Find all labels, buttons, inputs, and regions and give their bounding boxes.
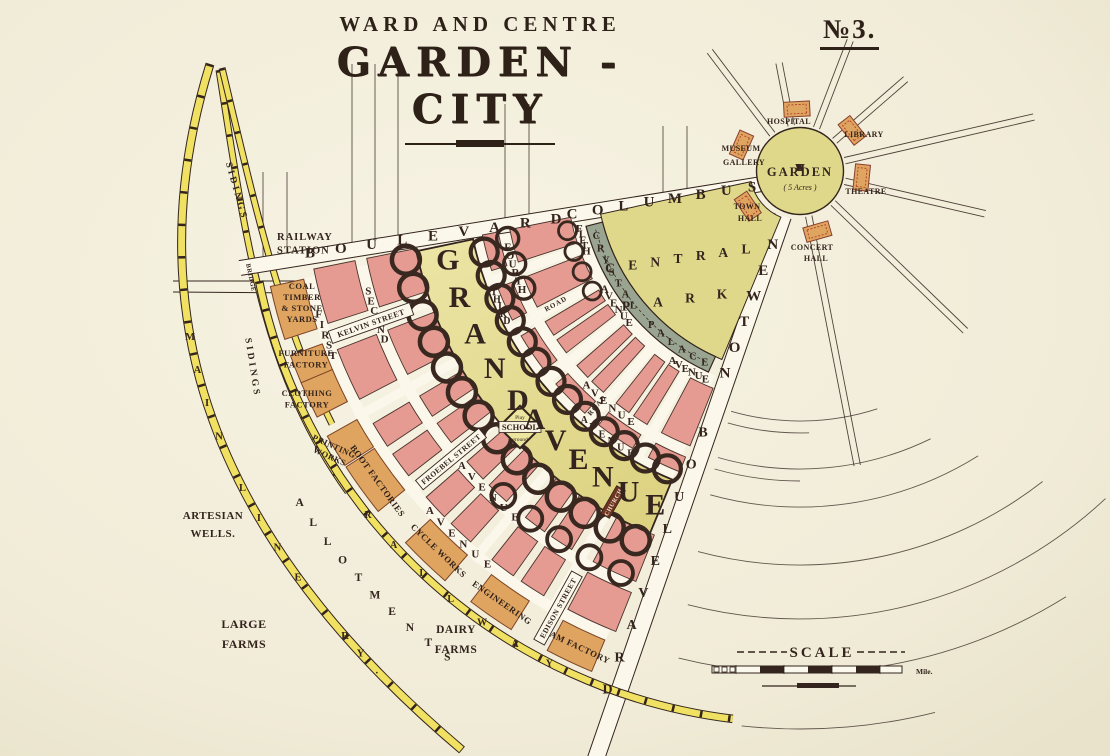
- label-clothing-factory-line: FACTORY: [285, 400, 329, 410]
- garden-city-map-plate: COALTIMBER& STONEYARDSFURNITUREFACTORYCL…: [0, 0, 1110, 756]
- label-allotments: M: [369, 590, 380, 602]
- label-boulevard-columbus: E: [428, 228, 438, 244]
- label-grand-avenue: N: [592, 460, 614, 493]
- label-boulevard-columbus: L: [397, 233, 407, 249]
- label-second-avenue: V: [468, 471, 476, 483]
- label-boulevard-newton: U: [674, 490, 684, 505]
- label-main-line-railway: N: [215, 431, 223, 442]
- label-third-avenue: A: [581, 415, 589, 426]
- label-central-park: K: [717, 287, 728, 302]
- label-crystal-palace: Y: [602, 256, 610, 267]
- label-boulevard-newton: R: [614, 650, 625, 665]
- label-boulevard-newton: N: [767, 237, 778, 253]
- label-first-avenue: U: [471, 549, 479, 561]
- title-block: WARD AND CENTRE GARDEN - CITY: [260, 12, 700, 145]
- label-circle-railway: I: [419, 568, 423, 579]
- label-allotments: T: [424, 637, 432, 649]
- label-first-avenue: E: [484, 559, 491, 571]
- label-boulevard-newton: D: [603, 682, 613, 697]
- label-artesian-wells-line: ARTESIAN: [183, 510, 243, 522]
- label-main-line-railway: A: [194, 365, 202, 376]
- civic-building-hospital: [783, 101, 810, 117]
- scale-segment: [808, 666, 832, 673]
- label-civic-building-concert-hall: CONCERT: [791, 243, 834, 252]
- label-boulevard-newton: N: [720, 366, 731, 382]
- label-third-avenue: V: [589, 422, 597, 433]
- label-crystal-palace: A: [622, 290, 630, 301]
- scale-segment: [760, 666, 784, 673]
- label-civic-building-theatre: THEATRE: [845, 187, 886, 196]
- label-main-line-railway: I: [257, 513, 261, 524]
- label-playground-bottom: ground: [512, 437, 528, 443]
- label-allotments: L: [309, 517, 317, 529]
- label-grand-avenue: A: [464, 318, 486, 351]
- label-third-avenue: D: [503, 316, 510, 327]
- label-coal-timber-stone-yards-line: COAL: [289, 281, 316, 291]
- label-main-line-railway: Y: [357, 648, 365, 659]
- label-boulevard-columbus: A: [489, 220, 500, 236]
- label-central-park: T: [673, 251, 682, 266]
- label-central-park: E: [628, 258, 637, 273]
- label-circle-railway: A: [511, 639, 519, 650]
- label-furniture-factory-line: FACTORY: [284, 360, 328, 370]
- label-central-park: R: [685, 291, 695, 306]
- label-allotments: T: [355, 572, 363, 584]
- label-clothing-factory-line: CLOTHING: [282, 388, 333, 398]
- label-artesian-wells-line: WELLS.: [191, 528, 236, 540]
- label-civic-building-library: LIBRARY: [844, 130, 883, 139]
- scale-segment: [856, 666, 880, 673]
- label-fourth-avenue: E: [627, 416, 634, 428]
- label-circle-railway: W: [477, 618, 487, 629]
- label-allotments: N: [406, 622, 415, 634]
- label-crystal-palace: R: [597, 243, 605, 254]
- label-boulevard-columbus: S: [748, 179, 756, 195]
- label-civic-building-concert-hall: HALL: [804, 254, 828, 263]
- label-fourth-avenue: A: [583, 379, 591, 391]
- title-flourish: [405, 143, 555, 145]
- label-allotments: O: [338, 554, 347, 566]
- label-boulevard-columbus: U: [721, 183, 732, 199]
- label-boulevard-columbus: R: [520, 216, 531, 232]
- label-allotments: E: [388, 606, 396, 618]
- label-main-line-railway: .: [375, 666, 378, 677]
- label-boulevard-newton: E: [758, 263, 768, 279]
- label-second-avenue: U: [500, 502, 508, 514]
- label-garden-acreage: ( 5 Acres ): [783, 183, 816, 192]
- label-crystal-palace: E: [701, 358, 708, 369]
- label-central-park: A: [653, 295, 663, 310]
- label-crystal-palace: C: [689, 352, 697, 363]
- label-grand-avenue: R: [449, 281, 471, 314]
- label-central-park: L: [741, 242, 750, 257]
- label-scale-unit: Mile.: [916, 667, 933, 676]
- label-large-farms-line: LARGE: [221, 617, 266, 631]
- label-civic-building-museum-gallery: MUSEUM: [722, 144, 761, 153]
- label-boulevard-columbus: M: [668, 191, 682, 207]
- label-crystal-palace: A: [657, 329, 665, 340]
- label-circle-railway: A: [390, 540, 398, 551]
- label-scale: SCALE: [789, 645, 854, 661]
- label-boulevard-columbus: O: [335, 241, 347, 257]
- scale-subsegment: [797, 683, 839, 688]
- label-crystal-palace: P: [648, 320, 655, 331]
- label-crystal-palace: A: [678, 345, 686, 356]
- label-third-avenue: N: [608, 436, 616, 447]
- label-second-avenue: E: [478, 482, 485, 494]
- label-crystal-palace: S: [609, 267, 615, 278]
- label-grand-avenue: U: [618, 475, 640, 508]
- label-boulevard-newton: O: [686, 458, 697, 473]
- map-title-line1: WARD AND CENTRE: [260, 12, 700, 37]
- label-allotments: A: [296, 497, 305, 509]
- label-allotments: S: [444, 651, 450, 663]
- label-coal-timber-stone-yards-line: YARDS: [286, 314, 317, 324]
- label-first-avenue: E: [448, 528, 455, 540]
- label-boulevard-columbus: L: [618, 199, 628, 215]
- label-dairy-farms-line: FARMS: [435, 644, 478, 656]
- label-civic-building-town-hall: HALL: [738, 214, 762, 223]
- label-boulevard-columbus: C: [567, 206, 578, 222]
- label-third-avenue: E: [627, 449, 634, 460]
- label-circle-railway: R: [364, 510, 372, 521]
- label-grand-avenue: E: [568, 443, 588, 476]
- label-fifth-avenue: E: [626, 317, 633, 329]
- label-boulevard-newton: L: [663, 522, 672, 537]
- label-allotments: L: [324, 536, 332, 548]
- label-boulevard-columbus: U: [644, 195, 655, 211]
- label-dairy-farms-line: DAIRY: [436, 624, 476, 636]
- label-boulevard-newton: B: [698, 426, 707, 441]
- label-grand-avenue: E: [645, 488, 665, 521]
- label-crystal-palace: L: [630, 300, 637, 311]
- label-third-avenue: U: [617, 442, 624, 453]
- label-central-park: N: [650, 254, 660, 269]
- label-grand-avenue: V: [545, 424, 567, 457]
- label-first-avenue: N: [459, 538, 467, 550]
- label-fourth-avenue: H: [518, 284, 527, 296]
- label-first-avenue: A: [426, 505, 434, 517]
- label-boulevard-columbus: V: [458, 224, 469, 240]
- label-grand-avenue: N: [484, 352, 506, 385]
- label-main-line-railway: I: [205, 398, 209, 409]
- label-main-line-railway: R: [341, 631, 349, 642]
- label-grand-avenue: G: [436, 243, 459, 276]
- label-civic-building-hospital: HOSPITAL: [767, 117, 811, 126]
- label-second-avenue: N: [489, 492, 497, 504]
- label-boulevard-columbus: D: [551, 211, 562, 227]
- label-boulevard-newton: V: [638, 586, 648, 601]
- label-civic-building-museum-gallery: GALLERY: [723, 158, 765, 167]
- label-grand-avenue: A: [524, 403, 546, 436]
- label-boulevard-newton: W: [746, 289, 761, 305]
- plate-number: №3.: [820, 14, 879, 50]
- map-title-line2: GARDEN - CITY: [260, 39, 700, 133]
- label-crystal-palace: T: [615, 279, 622, 290]
- label-fifth-avenue: H: [582, 246, 591, 258]
- label-civic-building-town-hall: TOWN: [734, 202, 761, 211]
- label-first-avenue: V: [437, 517, 445, 529]
- label-crystal-palace: L: [668, 337, 675, 348]
- label-fifth-avenue: E: [702, 373, 709, 385]
- x: N: [796, 163, 804, 174]
- label-central-park: R: [696, 248, 706, 263]
- label-boulevard-newton: O: [729, 340, 741, 356]
- label-boulevard-columbus: O: [592, 202, 604, 218]
- label-coal-timber-stone-yards-line: TIMBER: [283, 292, 321, 302]
- label-third-avenue: E: [599, 429, 606, 440]
- label-second-avenue: D: [381, 334, 389, 346]
- label-main-line-railway: E: [294, 573, 301, 584]
- label-railway-station: RAILWAY: [277, 232, 333, 243]
- label-second-avenue: E: [511, 512, 518, 524]
- label-circle-railway: Y: [546, 658, 554, 669]
- label-boulevard-newton: A: [626, 618, 637, 633]
- label-crystal-palace: C: [593, 231, 601, 242]
- label-boulevard-columbus: U: [366, 237, 377, 253]
- label-first-avenue: T: [329, 350, 337, 362]
- label-railway-station: STATION: [277, 246, 330, 257]
- label-central-park: A: [718, 245, 728, 260]
- label-boulevard-columbus: B: [696, 187, 706, 203]
- label-fourth-avenue: U: [618, 410, 626, 422]
- label-large-farms-line: FARMS: [222, 637, 266, 651]
- label-main-line-railway: L: [239, 483, 246, 494]
- label-main-line-railway: M: [185, 332, 195, 343]
- label-second-avenue: A: [458, 460, 466, 472]
- label-fourth-avenue: N: [608, 403, 616, 415]
- label-main-line-railway: N: [274, 543, 282, 554]
- label-boulevard-newton: T: [739, 314, 749, 330]
- label-circle-railway: L: [447, 594, 454, 605]
- label-boulevard-newton: E: [651, 554, 660, 569]
